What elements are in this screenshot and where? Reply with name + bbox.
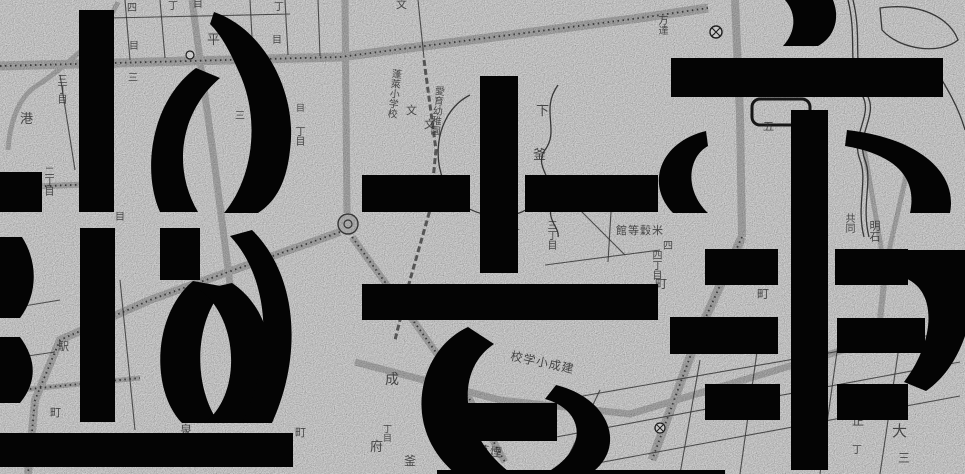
stencil-inner-rect [458, 403, 557, 441]
stencil-bracket-left [659, 131, 708, 213]
stencil-bottom-strip [437, 470, 725, 474]
stencil-wide-bar [671, 58, 943, 97]
stencil-bar [79, 10, 114, 212]
stencil-wide-bar [362, 284, 658, 320]
stencil-bar [80, 228, 115, 422]
stencil-rung [835, 249, 908, 285]
stencil-edge-crescent [0, 237, 34, 318]
stencil-arm-left [362, 175, 470, 212]
stencil-bracket-right [845, 130, 951, 213]
stencil-glyph-overlay [0, 0, 965, 474]
stencil-square [0, 172, 42, 212]
stencil-crescent-left [151, 68, 220, 212]
stencil-open-curve [421, 327, 512, 474]
stencil-edge-crescent [0, 337, 33, 403]
stencil-vertical-bar [791, 110, 828, 470]
stencil-stub [160, 228, 200, 280]
stencil-arm-right [525, 175, 658, 212]
stencil-rung [837, 384, 908, 420]
stencil-cap [783, 0, 836, 46]
stencil-base-bar [0, 433, 293, 467]
stencil-rung [705, 384, 780, 420]
map-art-composition: 丁目四丁目平目三三丁目港二丁目目三丁目目文蓬萊小学校文文愛育幼稚園下釜三丁目丁館… [0, 0, 965, 474]
stencil-rung [837, 318, 925, 353]
stencil-vertical-bar [480, 76, 518, 273]
stencil-rung [670, 317, 778, 354]
stencil-shapes [0, 0, 965, 474]
stencil-crescent-right [210, 12, 291, 213]
stencil-rung [705, 249, 778, 285]
